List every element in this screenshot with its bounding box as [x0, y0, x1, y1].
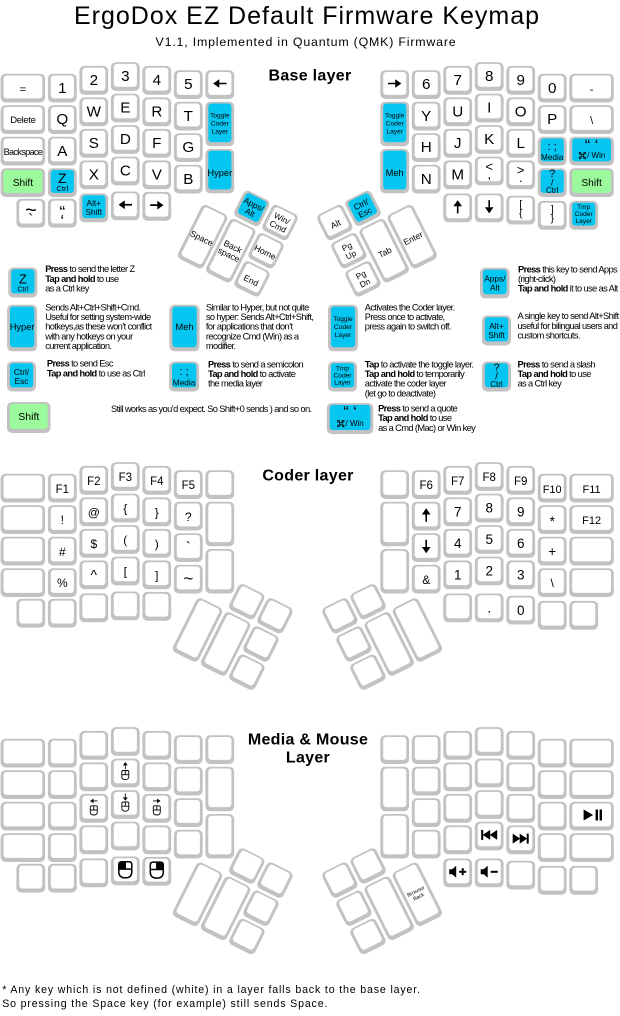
svg-text:T: T [184, 108, 193, 125]
svg-text:C: C [120, 163, 131, 180]
svg-text:3: 3 [121, 68, 129, 85]
svg-text:&: & [422, 573, 430, 587]
svg-text:Toggle: Toggle [333, 316, 353, 323]
svg-text:Shift: Shift [85, 207, 102, 217]
svg-text:the media layer: the media layer [208, 379, 263, 389]
svg-text:‘: ‘ [60, 212, 64, 231]
svg-text:F: F [152, 135, 161, 152]
svg-text:current application.: current application. [45, 341, 111, 351]
svg-text:K: K [484, 131, 494, 148]
svg-text:%: % [57, 576, 68, 590]
svg-text:custom shortcuts.: custom shortcuts. [518, 331, 580, 341]
svg-text:Shift: Shift [13, 178, 34, 189]
svg-text:Press to send a semicolon: Press to send a semicolon [208, 359, 304, 369]
svg-text:Coder: Coder [334, 324, 353, 331]
svg-text:Coder: Coder [334, 372, 353, 379]
svg-text:Layer: Layer [334, 379, 351, 386]
svg-text:W: W [87, 104, 102, 121]
svg-text:0: 0 [548, 80, 556, 97]
svg-text:A single key to send Alt+Shift: A single key to send Alt+Shift [518, 311, 620, 321]
svg-text:hotkeys,as these won’t conflic: hotkeys,as these won’t conflict [45, 322, 152, 332]
svg-text:Press to send a slash: Press to send a slash [518, 359, 596, 369]
svg-text:U: U [452, 104, 463, 121]
svg-text:Q: Q [56, 111, 68, 128]
svg-text:Layer: Layer [335, 332, 352, 339]
svg-text:Press once to activate,: Press once to activate, [365, 312, 445, 322]
svg-text:So pressing the Space key (for: So pressing the Space key (for example) … [2, 998, 328, 1010]
svg-text:#: # [59, 545, 66, 559]
svg-text:,: , [487, 167, 490, 181]
svg-text:Ctrl: Ctrl [17, 286, 28, 293]
svg-text:/ Win: / Win [587, 151, 605, 160]
svg-text:-: - [590, 84, 594, 96]
svg-text:Coder layer: Coder layer [262, 468, 353, 485]
svg-text:6: 6 [422, 76, 430, 93]
svg-text:Shift: Shift [488, 330, 505, 340]
svg-text:}: } [550, 213, 554, 225]
svg-text:^: ^ [91, 567, 98, 582]
svg-text:Ctrl: Ctrl [490, 380, 503, 389]
svg-text:ErgoDox EZ Default Firmware Ke: ErgoDox EZ Default Firmware Keymap [74, 2, 540, 30]
svg-text:X: X [89, 167, 99, 184]
svg-text:Useful for setting system-wide: Useful for setting system-wide [45, 312, 151, 322]
svg-text:E: E [120, 100, 130, 117]
svg-text:`: ` [28, 212, 33, 229]
svg-text:{: { [519, 207, 523, 219]
svg-text:]: ] [155, 568, 158, 582]
svg-text:Press to send the letter Z: Press to send the letter Z [45, 264, 135, 274]
svg-text:as a Ctrl key: as a Ctrl key [45, 284, 90, 294]
svg-text:(: ( [123, 533, 127, 547]
svg-text:F5: F5 [182, 480, 195, 492]
svg-text:9: 9 [516, 72, 524, 89]
svg-text:{: { [123, 502, 127, 516]
svg-text:P: P [547, 111, 557, 128]
svg-text:Backspace: Backspace [4, 147, 43, 157]
svg-text:with any hotkeys on your: with any hotkeys on your [44, 331, 133, 341]
svg-text:/ Win: / Win [346, 419, 364, 428]
svg-text:Tap and hold to use as Ctrl: Tap and hold to use as Ctrl [47, 368, 145, 378]
svg-text:Tap to activate the toggle lay: Tap to activate the toggle layer. [365, 359, 474, 369]
svg-text:Still works as you’d expect. S: Still works as you’d expect. So Shift+0 … [111, 404, 311, 414]
svg-text:0: 0 [517, 603, 525, 618]
svg-text:useful for bilingual users and: useful for bilingual users and [518, 321, 618, 331]
svg-text:Tap and hold to use: Tap and hold to use [378, 413, 452, 423]
svg-text:Z: Z [19, 271, 27, 286]
svg-text:Tap and hold to use: Tap and hold to use [45, 274, 119, 284]
svg-text:+: + [548, 544, 556, 559]
svg-text:V1.1, Implemented in Quantum (: V1.1, Implemented in Quantum (QMK) Firmw… [156, 35, 457, 49]
svg-text:F11: F11 [583, 484, 601, 496]
svg-text:: ;: : ; [180, 366, 189, 378]
svg-text:press again to switch off.: press again to switch off. [365, 322, 451, 332]
svg-text:as a Ctrl key: as a Ctrl key [518, 379, 563, 389]
svg-text:Ctrl: Ctrl [56, 184, 68, 193]
svg-text:): ) [155, 537, 159, 551]
svg-text:@: @ [88, 505, 100, 519]
svg-text:Press this key to send Apps: Press this key to send Apps [518, 264, 618, 274]
svg-text:?: ? [185, 510, 192, 524]
svg-text:D: D [120, 131, 131, 148]
svg-text:Meh: Meh [175, 322, 193, 332]
svg-text:2: 2 [90, 72, 98, 89]
svg-text:6: 6 [517, 536, 525, 551]
svg-text:: ;: : ; [548, 141, 557, 153]
svg-text:7: 7 [453, 72, 461, 89]
svg-text:8: 8 [485, 501, 493, 516]
svg-text:Hyper: Hyper [207, 168, 232, 178]
svg-text:Tap and hold it to use as Alt: Tap and hold it to use as Alt [518, 284, 619, 294]
svg-text:!: ! [61, 513, 64, 527]
svg-text:R: R [151, 104, 162, 121]
svg-text:Similar to Hyper, but not quit: Similar to Hyper, but not quite [206, 302, 309, 312]
svg-text:5: 5 [485, 532, 493, 547]
svg-text:7: 7 [454, 504, 462, 519]
svg-text:activate the coder layer: activate the coder layer [365, 379, 447, 389]
svg-text:Esc: Esc [15, 376, 29, 386]
svg-text:V: V [152, 167, 163, 184]
svg-text:Shift: Shift [581, 178, 602, 189]
svg-text:8: 8 [485, 68, 493, 85]
svg-text:Coder: Coder [211, 120, 230, 127]
svg-text:Base layer: Base layer [268, 68, 351, 85]
svg-text:J: J [454, 135, 462, 152]
svg-text:Sends Alt+Ctrl+Shift+Cmd.: Sends Alt+Ctrl+Shift+Cmd. [45, 302, 140, 312]
svg-text:F1: F1 [56, 484, 69, 496]
svg-text:*: * [550, 514, 556, 529]
svg-text:so hyper: Sends Alt+Ctrl+Shift: so hyper: Sends Alt+Ctrl+Shift, [206, 312, 313, 322]
svg-text:recognize Cmd (Win) as a: recognize Cmd (Win) as a [206, 331, 300, 341]
svg-text:F9: F9 [514, 476, 527, 488]
svg-text:F7: F7 [451, 476, 464, 488]
svg-text:F8: F8 [482, 472, 495, 484]
svg-text:as a Cmd (Mac) or Win key: as a Cmd (Mac) or Win key [378, 423, 476, 433]
svg-text:1: 1 [58, 80, 66, 97]
svg-text:H: H [421, 139, 432, 156]
svg-text:modifier.: modifier. [206, 341, 236, 351]
svg-text:Alt: Alt [490, 282, 500, 292]
svg-text:Layer: Layer [386, 128, 403, 135]
svg-text:Layer: Layer [575, 218, 592, 225]
svg-text:Media & Mouse: Media & Mouse [248, 732, 368, 749]
svg-text:Tmp: Tmp [336, 365, 350, 372]
svg-text:3: 3 [517, 567, 525, 582]
svg-text:(right-click): (right-click) [518, 274, 556, 284]
svg-text:}: } [155, 505, 159, 519]
svg-text:F6: F6 [419, 480, 432, 492]
svg-text:Coder: Coder [386, 120, 405, 127]
svg-text:5: 5 [184, 76, 192, 93]
svg-text:Tap and hold to use: Tap and hold to use [518, 369, 592, 379]
svg-text:4: 4 [153, 72, 161, 89]
svg-text:S: S [89, 135, 99, 152]
svg-text:Shift: Shift [18, 411, 39, 423]
svg-text:Activates the Coder layer.: Activates the Coder layer. [365, 302, 455, 312]
svg-text:Y: Y [421, 108, 431, 125]
svg-text:* Any key which is not defined: * Any key which is not defined (white) i… [2, 984, 421, 996]
svg-text:Media: Media [173, 377, 196, 387]
svg-text:Ctrl: Ctrl [546, 186, 559, 195]
svg-text:(let go to deactivate): (let go to deactivate) [365, 388, 436, 398]
svg-text:Tmp: Tmp [577, 204, 591, 211]
svg-text:Tap and hold to temporarily: Tap and hold to temporarily [365, 369, 465, 379]
svg-text:9: 9 [517, 504, 525, 519]
svg-text:for applications that don’t: for applications that don’t [206, 322, 294, 332]
svg-text:Layer: Layer [212, 128, 229, 135]
svg-text:2: 2 [485, 564, 493, 579]
svg-text:.: . [519, 171, 522, 185]
svg-text:4: 4 [454, 536, 462, 551]
svg-text:O: O [515, 104, 527, 121]
svg-text:G: G [182, 139, 194, 156]
svg-text:F12: F12 [582, 515, 601, 527]
svg-text:F10: F10 [543, 484, 562, 496]
svg-text:N: N [421, 171, 432, 188]
svg-text:$: $ [90, 537, 97, 551]
svg-text:F3: F3 [119, 472, 132, 484]
svg-text:L: L [516, 135, 524, 152]
svg-text:Meh: Meh [386, 168, 404, 178]
svg-text:Delete: Delete [10, 115, 35, 126]
svg-text:M: M [451, 167, 464, 184]
svg-text:Hyper: Hyper [10, 322, 35, 332]
svg-text:F2: F2 [87, 476, 100, 488]
svg-text:A: A [57, 143, 68, 160]
svg-text:B: B [183, 171, 193, 188]
svg-text:Toggle: Toggle [210, 112, 230, 119]
svg-text:Press to send a quote: Press to send a quote [378, 403, 457, 413]
svg-text:Media: Media [541, 153, 564, 162]
svg-text:Toggle: Toggle [385, 112, 405, 119]
svg-text:~: ~ [183, 569, 193, 588]
svg-text:Tap and hold to activate: Tap and hold to activate [208, 369, 296, 379]
svg-text:=: = [20, 84, 26, 96]
svg-text:F4: F4 [150, 476, 164, 488]
svg-text:I: I [487, 100, 491, 117]
svg-text:`: ` [186, 539, 191, 556]
svg-text:Layer: Layer [286, 750, 330, 767]
svg-text:.: . [487, 601, 491, 616]
svg-text:Press to send Esc: Press to send Esc [47, 359, 114, 369]
svg-text:1: 1 [454, 567, 462, 582]
svg-text:Coder: Coder [575, 211, 594, 218]
